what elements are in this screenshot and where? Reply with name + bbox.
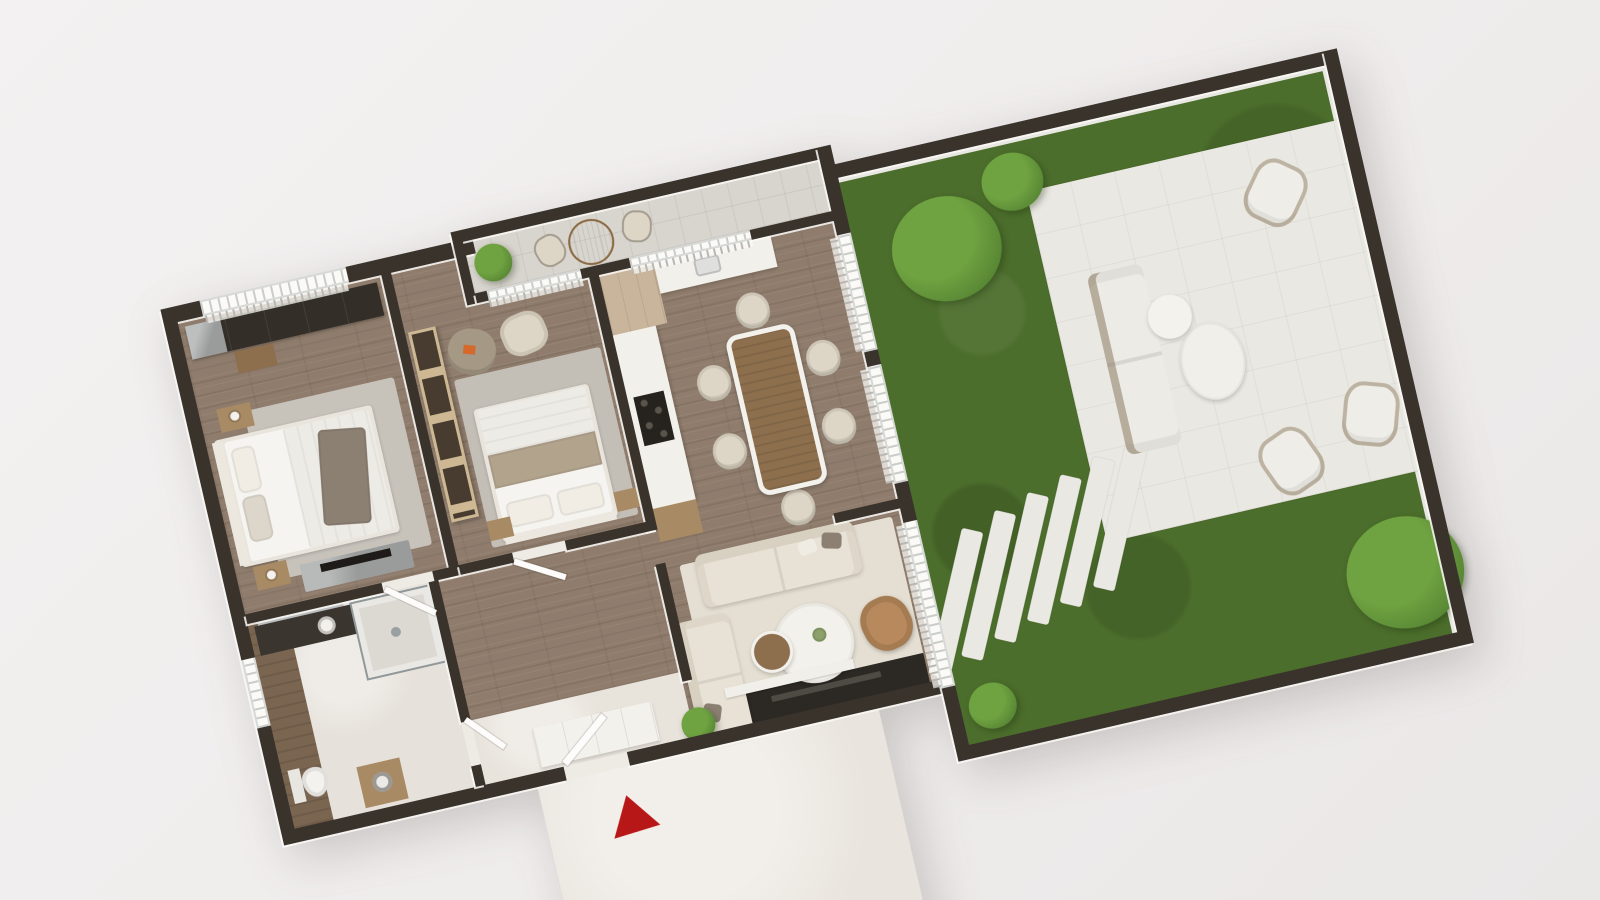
scene-canvas — [0, 0, 1600, 900]
patio-lounge-chair — [1340, 380, 1401, 449]
master-throw-blanket — [317, 427, 372, 526]
balcony-chair — [622, 210, 653, 243]
floor-plan — [115, 0, 1524, 900]
bedroom2-book — [463, 345, 476, 355]
living-sofa-long-pillow-dark — [821, 532, 841, 548]
